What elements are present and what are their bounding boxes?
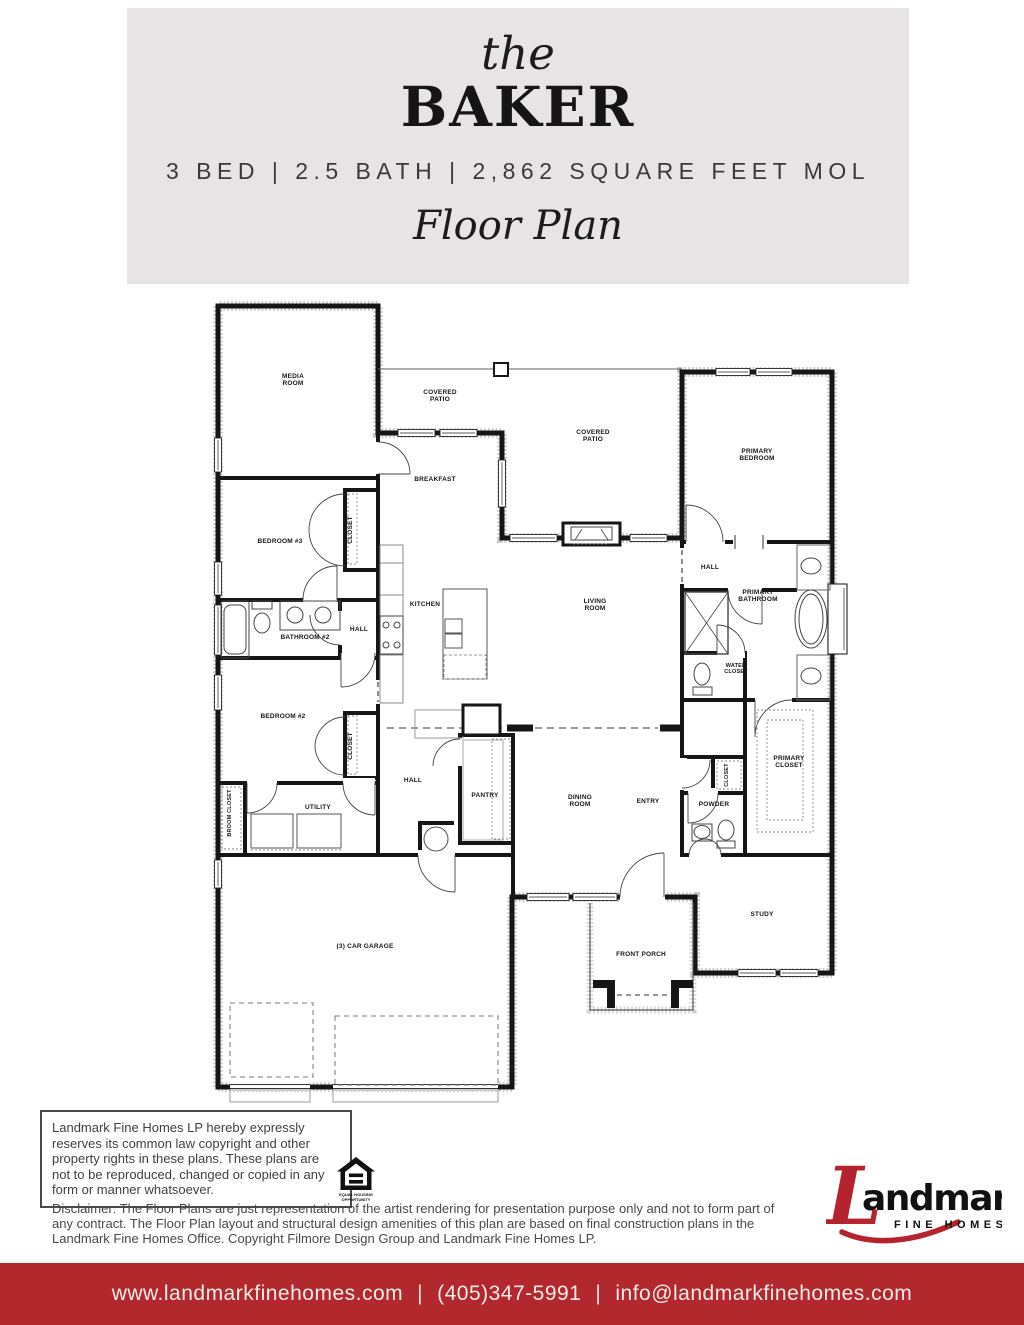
footer-separator-2: | [595, 1282, 601, 1306]
contact-footer: www.landmarkfinehomes.com | (405)347-599… [0, 1263, 1024, 1325]
label-primary-bedroom: PRIMARYBEDROOM [739, 448, 774, 462]
label-pantry: PANTRY [471, 792, 499, 799]
disclaimer-text: Disclaimer: The Floor Plans are just rep… [52, 1202, 778, 1246]
door-swings [247, 442, 792, 897]
footer-website[interactable]: www.landmarkfinehomes.com [112, 1282, 403, 1306]
plan-name-prefix: the [127, 30, 909, 77]
label-breakfast: BREAKFAST [414, 476, 456, 483]
footer-separator-1: | [417, 1282, 423, 1306]
logo-tagline: FINE HOMES [894, 1219, 1002, 1231]
ceiling-dashes [378, 550, 682, 728]
powder-fixtures [692, 820, 735, 848]
label-kitchen: KITCHEN [410, 601, 440, 608]
copyright-notice-box: Landmark Fine Homes LP hereby expressly … [40, 1110, 352, 1208]
label-covered-patio-side: COVEREDPATIO [576, 429, 610, 443]
label-primary-closet: PRIMARYCLOSET [773, 755, 805, 769]
label-closet-entry: CLOSET [724, 763, 730, 787]
patio-post [494, 363, 508, 376]
label-front-porch: FRONT PORCH [616, 951, 666, 958]
logo-wordmark: andmark [862, 1178, 1002, 1219]
footer-email[interactable]: info@landmarkfinehomes.com [615, 1282, 912, 1306]
plan-specs: 3 BED | 2.5 BATH | 2,862 SQUARE FEET MOL [127, 158, 909, 185]
header-banner: the BAKER 3 BED | 2.5 BATH | 2,862 SQUAR… [127, 8, 909, 284]
footer-phone[interactable]: (405)347-5991 [437, 1282, 581, 1306]
room-labels: MEDIAROOM COVEREDPATIO COVEREDPATIO PRIM… [227, 373, 805, 958]
label-water-closet: WATERCLOSET [724, 663, 748, 675]
label-hall-bedrooms: HALL [350, 626, 368, 633]
label-powder: POWDER [699, 801, 730, 808]
plan-name: BAKER [127, 77, 909, 138]
label-primary-bathroom: PRIMARYBATHROOM [738, 589, 777, 603]
fireplace [563, 523, 620, 545]
label-hall-primary: HALL [701, 564, 719, 571]
label-closet-bed3: CLOSET [347, 516, 354, 544]
bathroom2-fixtures [221, 601, 340, 658]
label-garage: (3) CAR GARAGE [337, 943, 394, 950]
label-media-room: MEDIAROOM [282, 373, 304, 387]
label-closet-bed2: CLOSET [347, 732, 354, 760]
label-study: STUDY [750, 911, 773, 918]
label-bedroom-2: BEDROOM #2 [261, 713, 306, 720]
tub-nook [828, 584, 847, 654]
label-dining-room: DININGROOM [568, 794, 592, 808]
label-broom-closet: BROOM CLOSET [227, 789, 233, 837]
copyright-text: Landmark Fine Homes LP hereby expressly … [52, 1120, 324, 1197]
page-subtitle: Floor Plan [127, 203, 909, 249]
label-utility: UTILITY [305, 804, 331, 811]
equal-housing-icon: EQUAL HOUSING OPPORTUNITY [336, 1156, 376, 1204]
landmark-logo: L andmark FINE HOMES [826, 1152, 1002, 1252]
label-entry: ENTRY [637, 798, 660, 805]
porch-columns [593, 980, 693, 1008]
floor-plan-drawing: MEDIAROOM COVEREDPATIO COVEREDPATIO PRIM… [205, 298, 865, 1108]
label-hall-center: HALL [404, 777, 422, 784]
label-covered-patio-rear: COVEREDPATIO [423, 389, 457, 403]
car-spaces [230, 1003, 498, 1085]
mud-bench [463, 705, 500, 735]
label-bathroom-2: BATHROOM #2 [280, 634, 329, 641]
label-living-room: LIVINGROOM [584, 598, 607, 612]
label-bedroom-3: BEDROOM #3 [258, 538, 303, 545]
